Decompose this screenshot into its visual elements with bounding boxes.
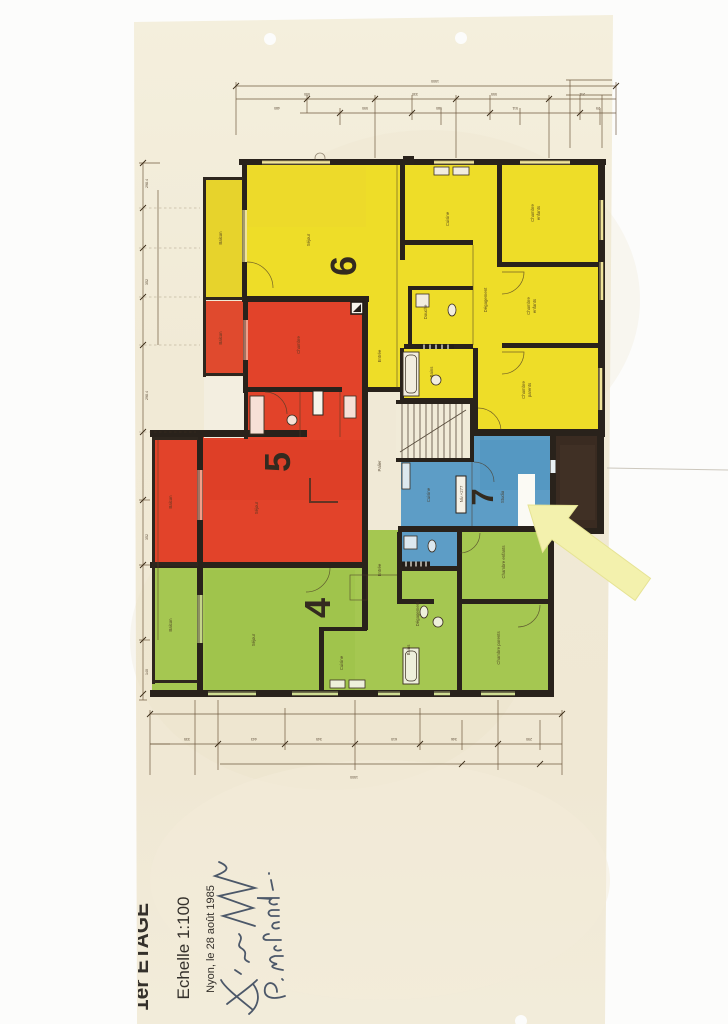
svg-text:352: 352 — [145, 279, 149, 285]
svg-text:Balcon: Balcon — [168, 495, 173, 509]
svg-text:555: 555 — [491, 92, 497, 96]
svg-text:140: 140 — [145, 669, 149, 675]
svg-text:Douche: Douche — [423, 304, 428, 319]
svg-text:290: 290 — [526, 737, 532, 741]
svg-text:Cuisine: Cuisine — [426, 487, 431, 502]
svg-text:Chambre: Chambre — [521, 381, 526, 399]
svg-text:Cuisine: Cuisine — [339, 655, 344, 670]
svg-text:Echelle 1:100: Echelle 1:100 — [174, 896, 193, 999]
svg-text:Nyon, le 28 août 1985: Nyon, le 28 août 1985 — [205, 885, 217, 993]
svg-text:Niv.+277: Niv.+277 — [459, 485, 464, 502]
svg-text:5: 5 — [257, 452, 298, 472]
svg-text:1500: 1500 — [431, 79, 439, 83]
svg-text:443: 443 — [251, 737, 257, 741]
svg-text:7: 7 — [465, 488, 500, 505]
svg-text:Chambre: Chambre — [526, 297, 531, 315]
svg-text:Dégagement: Dégagement — [483, 287, 488, 312]
svg-text:480: 480 — [274, 106, 280, 110]
svg-text:Entrée: Entrée — [377, 349, 382, 362]
svg-text:Balcon: Balcon — [168, 618, 173, 632]
svg-text:Bains: Bains — [406, 645, 411, 656]
svg-text:6: 6 — [323, 256, 364, 276]
svg-text:enfants: enfants — [532, 299, 537, 313]
svg-text:1500: 1500 — [350, 775, 358, 779]
svg-text:Chambre parents: Chambre parents — [496, 631, 501, 664]
svg-text:330: 330 — [412, 92, 418, 96]
svg-text:Cuisine: Cuisine — [445, 211, 450, 226]
svg-text:Séjour: Séjour — [254, 501, 259, 514]
svg-text:Chambre: Chambre — [296, 336, 301, 354]
svg-text:346: 346 — [451, 737, 457, 741]
svg-text:Séjour: Séjour — [306, 233, 311, 246]
svg-text:Balcon: Balcon — [218, 231, 223, 245]
svg-text:Balcon: Balcon — [218, 331, 223, 345]
svg-text:enfants: enfants — [536, 206, 541, 220]
svg-text:550: 550 — [304, 92, 310, 96]
svg-text:Chambre: Chambre — [530, 204, 535, 222]
svg-text:Dégagement: Dégagement — [415, 601, 420, 626]
svg-text:335: 335 — [184, 737, 190, 741]
svg-text:Séjour: Séjour — [251, 633, 256, 646]
svg-text:Chambre enfants: Chambre enfants — [501, 546, 506, 579]
svg-text:211: 211 — [579, 92, 585, 96]
svg-text:590: 590 — [362, 106, 368, 110]
svg-text:298.4: 298.4 — [145, 391, 149, 400]
svg-text:4: 4 — [297, 598, 338, 618]
svg-text:Bains: Bains — [429, 367, 434, 378]
svg-text:352: 352 — [145, 534, 149, 540]
svg-text:29: 29 — [596, 106, 600, 110]
svg-text:parents: parents — [527, 383, 532, 397]
svg-text:345: 345 — [316, 737, 322, 741]
svg-text:180: 180 — [436, 106, 442, 110]
svg-text:Palier: Palier — [377, 460, 382, 472]
svg-text:Entrée: Entrée — [377, 563, 382, 576]
svg-text:511: 511 — [512, 106, 518, 110]
svg-text:Studio: Studio — [500, 490, 505, 503]
svg-text:298.4: 298.4 — [145, 179, 149, 188]
svg-text:610: 610 — [391, 737, 397, 741]
